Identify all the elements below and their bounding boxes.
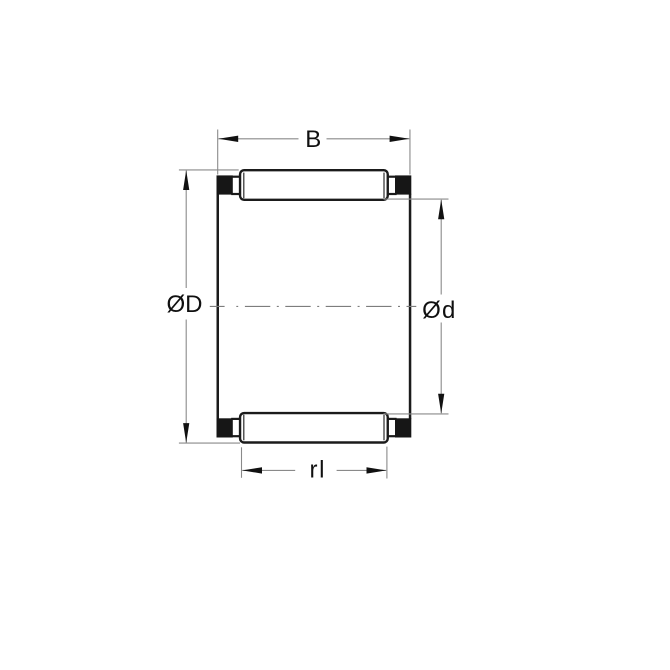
svg-text:B: B: [305, 126, 321, 153]
svg-text:Ød: Ød: [422, 297, 456, 324]
svg-text:ØD: ØD: [167, 291, 203, 318]
svg-text:rl: rl: [310, 457, 327, 484]
